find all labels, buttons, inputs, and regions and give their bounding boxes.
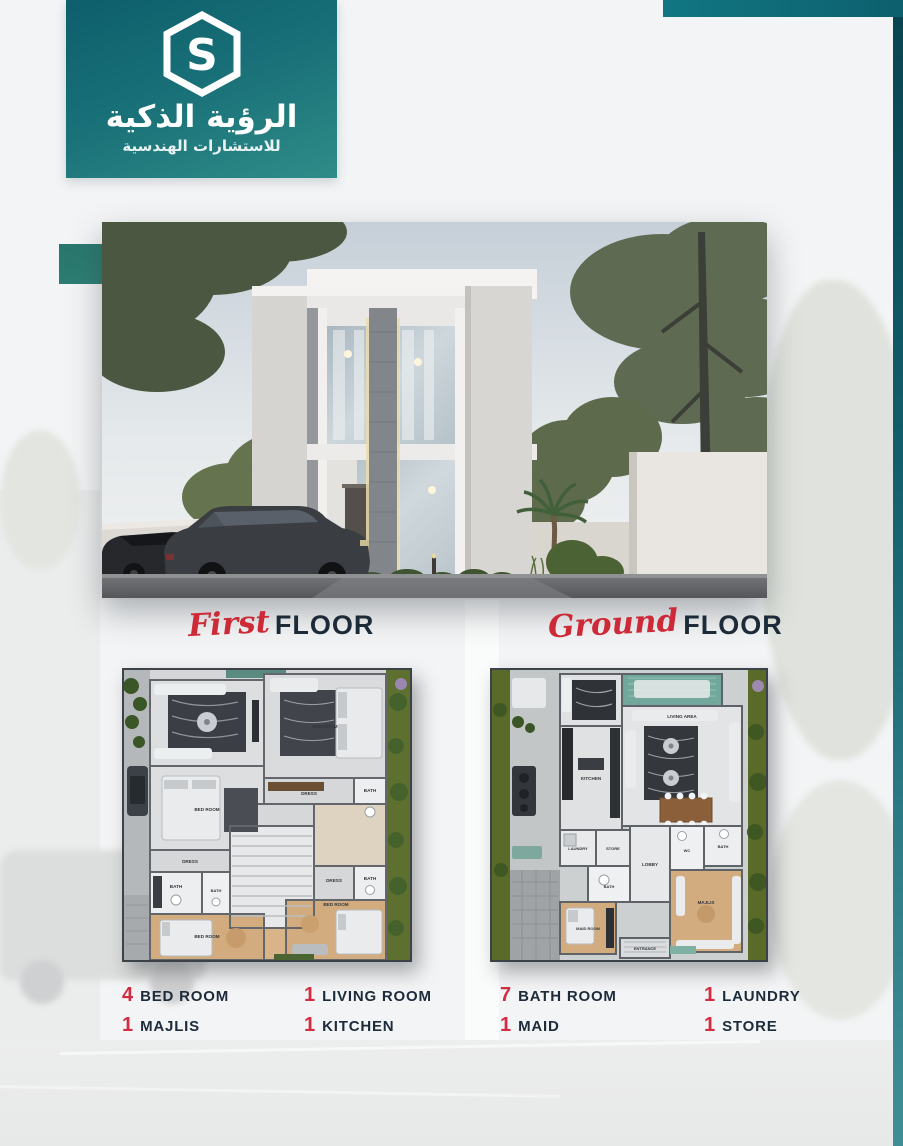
room-label: STORE xyxy=(606,846,620,851)
room-label: BATH xyxy=(364,876,377,881)
room-label: BED ROOM xyxy=(194,807,219,812)
room-label: DRESS xyxy=(326,878,342,883)
room-label: BATH xyxy=(718,844,729,849)
brand-logo-badge: S الرؤية الذكية للاستشارات الهندسية xyxy=(66,0,337,178)
room-label: BED ROOM xyxy=(323,902,348,907)
brand-name-arabic: الرؤية الذكية xyxy=(106,100,298,134)
feature-label: STORE xyxy=(722,1018,777,1035)
room-label: BATH xyxy=(364,788,377,793)
feature-living-room: 1 LIVING ROOM xyxy=(304,984,432,1007)
feature-label: LAUNDRY xyxy=(722,988,800,1005)
feature-count: 1 xyxy=(304,984,315,1007)
room-label: ENTRANCE xyxy=(634,946,657,951)
feature-count: 1 xyxy=(704,984,715,1007)
feature-label: KITCHEN xyxy=(322,1018,394,1035)
room-label: LIVING AREA xyxy=(667,714,697,719)
room-label: DRESS xyxy=(182,859,198,864)
teal-accent-square xyxy=(59,244,104,284)
room-label: BARBECUE AREA xyxy=(532,774,536,806)
room-label: BATH xyxy=(170,884,183,889)
feature-label: BED ROOM xyxy=(140,988,229,1005)
feature-count: 7 xyxy=(500,984,511,1007)
room-label: BED ROOM xyxy=(312,724,337,729)
room-label: WC xyxy=(684,848,691,853)
svg-text:S: S xyxy=(186,30,218,81)
top-accent-bar xyxy=(663,0,903,17)
feature-label: LIVING ROOM xyxy=(322,988,432,1005)
feature-count: 1 xyxy=(500,1014,511,1037)
first-floor-title: First FLOOR xyxy=(188,606,374,642)
room-label: MAJLIS xyxy=(698,900,715,905)
right-accent-strip xyxy=(893,17,903,1146)
feature-maid: 1 MAID xyxy=(500,1014,560,1037)
first-floor-plan-image: BED ROOM DRESS BATH BED ROOM DRESS BATH … xyxy=(122,668,412,962)
poster: S الرؤية الذكية للاستشارات الهندسية xyxy=(0,0,903,1146)
first-floor-script-word: First xyxy=(187,604,271,644)
feature-majlis: 1 MAJLIS xyxy=(122,1014,200,1037)
feature-bedrooms: 4 BED ROOM xyxy=(122,984,229,1007)
first-floor-block-word: FLOOR xyxy=(275,610,375,641)
ground-floor-title: Ground FLOOR xyxy=(548,606,783,642)
room-label: LAUNDRY xyxy=(568,846,588,851)
ground-floor-block-word: FLOOR xyxy=(683,610,783,641)
room-label: LOBBY xyxy=(642,862,658,867)
room-label: BATH xyxy=(604,884,615,889)
ground-floor-script-word: Ground xyxy=(547,603,679,646)
room-label: MAID ROOM xyxy=(576,926,600,931)
feature-count: 1 xyxy=(704,1014,715,1037)
feature-label: MAID xyxy=(518,1018,560,1035)
feature-laundry: 1 LAUNDRY xyxy=(704,984,801,1007)
feature-count: 4 xyxy=(122,984,133,1007)
feature-kitchen: 1 KITCHEN xyxy=(304,1014,394,1037)
ground-floor-plan-image: LIVING AREA KITCHEN LAUNDRY STORE BATH L… xyxy=(490,668,768,962)
villa-render-image xyxy=(102,222,767,598)
brand-tagline-arabic: للاستشارات الهندسية xyxy=(122,137,280,155)
feature-store: 1 STORE xyxy=(704,1014,778,1037)
room-label: DRESS xyxy=(301,791,317,796)
feature-count: 1 xyxy=(304,1014,315,1037)
feature-label: BATH ROOM xyxy=(518,988,617,1005)
room-label: BATH xyxy=(211,888,222,893)
room-label: BED ROOM xyxy=(194,934,219,939)
feature-label: MAJLIS xyxy=(140,1018,200,1035)
feature-count: 1 xyxy=(122,1014,133,1037)
hexagon-s-logo-icon: S xyxy=(159,10,245,98)
room-label: KITCHEN xyxy=(581,776,602,781)
feature-bathrooms: 7 BATH ROOM xyxy=(500,984,617,1007)
